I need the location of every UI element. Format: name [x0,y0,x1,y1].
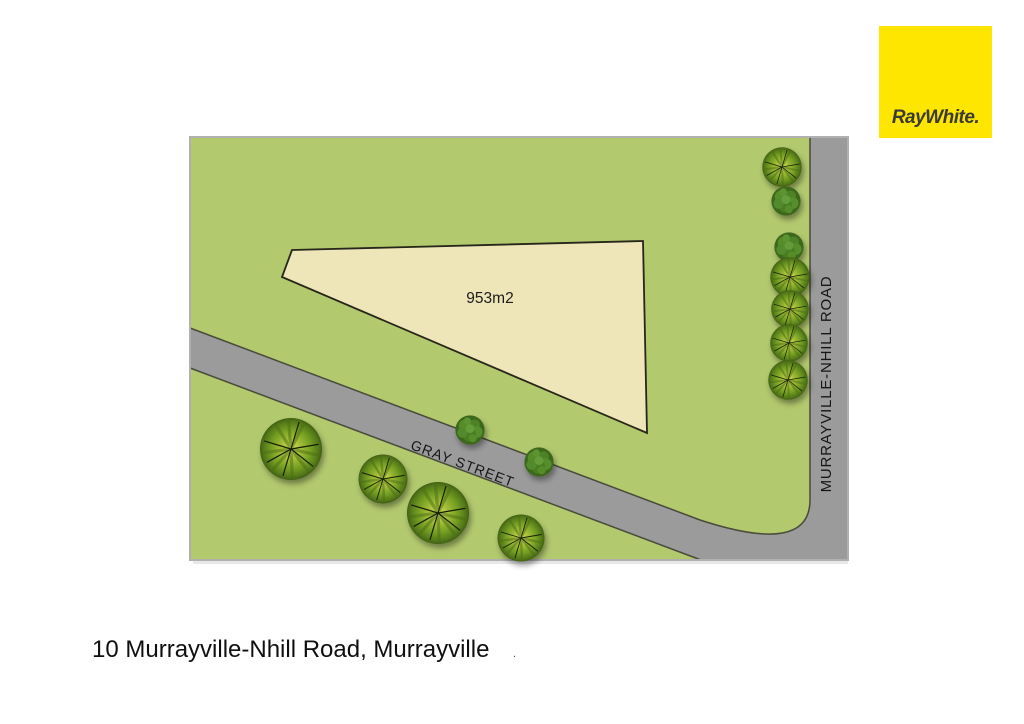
lot-area-label: 953m2 [466,290,513,307]
tree-bush [771,186,800,215]
tree-bush [774,232,803,261]
tree-palm [771,290,809,328]
property-address-caption: 10 Murrayville-Nhill Road, Murrayville [92,636,489,664]
tree-palm [762,147,801,186]
tree-palm [260,418,322,480]
raywhite-logo-text: RayWhite. [892,107,979,129]
tree-palm [498,515,545,562]
stray-mark: . [513,648,516,660]
tree-palm [407,482,469,544]
flyer-page: 953m2 GRAY STREET MURRAYVILLE-NHILL ROAD… [0,0,1024,724]
site-plan-map: 953m2 GRAY STREET MURRAYVILLE-NHILL ROAD [0,0,1024,724]
tree-bush [455,415,484,444]
raywhite-logo: RayWhite. [879,26,992,138]
tree-bush [524,447,553,476]
tree-palm [770,324,808,362]
tree-palm [768,360,807,399]
murrayville-road-label: MURRAYVILLE-NHILL ROAD [818,276,835,493]
tree-palm [359,455,408,504]
